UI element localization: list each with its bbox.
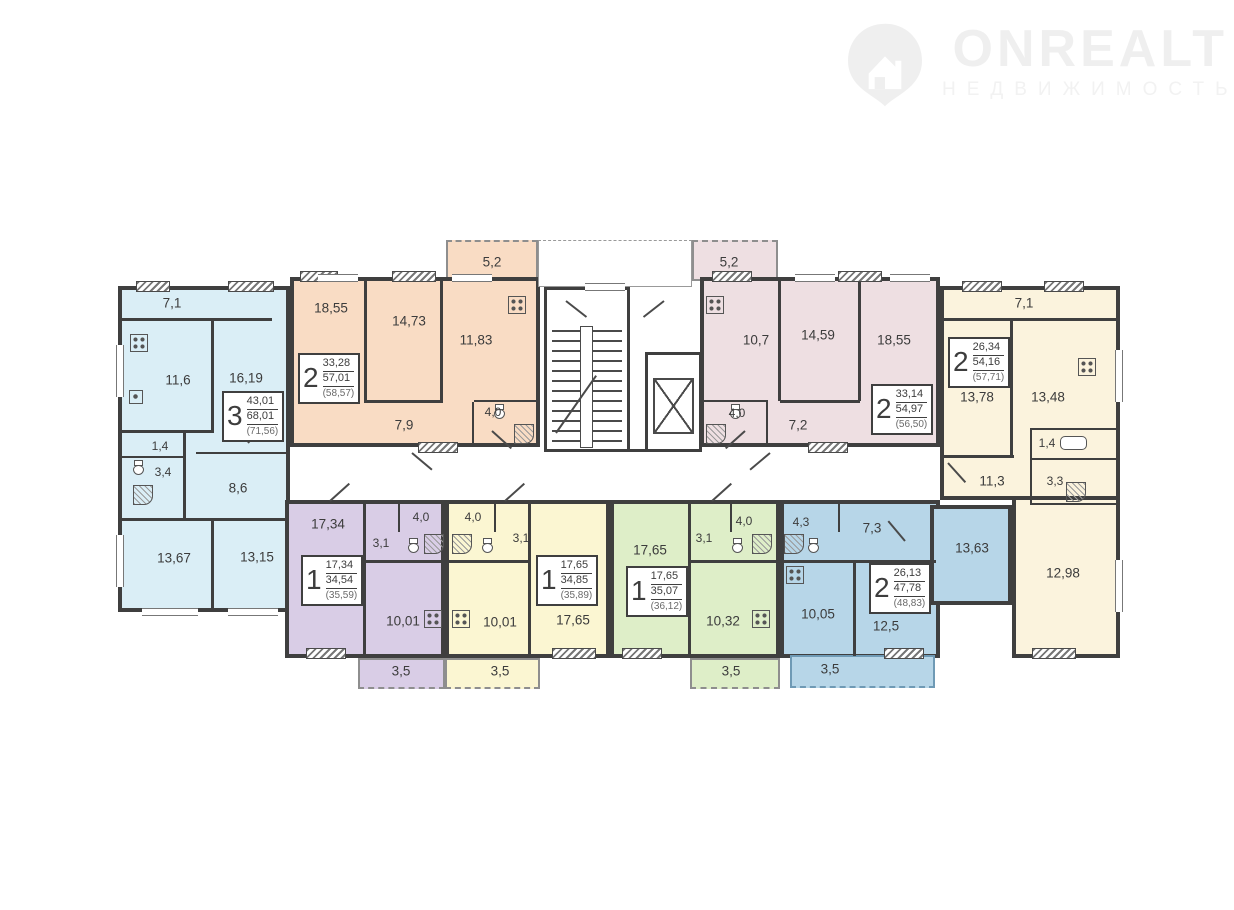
wall: [853, 563, 856, 656]
area-with-balcony: (56,50): [896, 418, 928, 431]
room-area-label: 18,55: [314, 301, 348, 316]
room-area-label: 4,0: [736, 514, 753, 528]
wall: [858, 281, 861, 401]
stove-icon: [130, 334, 148, 352]
wall-pier: [838, 271, 882, 282]
room-area-label: 13,15: [240, 550, 274, 565]
wall-pier: [808, 442, 848, 453]
living-area: 26,34: [973, 341, 1005, 356]
wall: [1032, 503, 1116, 505]
room-area-label: 16,19: [229, 371, 263, 386]
wall: [1030, 458, 1116, 460]
wall: [1030, 428, 1116, 430]
wall: [122, 430, 214, 433]
room-area-label: 3,1: [373, 536, 390, 550]
wall-pier: [1032, 648, 1076, 659]
window: [890, 274, 930, 282]
total-area: 54,97: [896, 403, 928, 418]
total-area: 34,54: [326, 574, 358, 589]
area-with-balcony: (35,59): [326, 589, 358, 602]
area-with-balcony: (71,56): [247, 425, 279, 438]
window: [795, 274, 835, 282]
shower-icon: [706, 424, 726, 444]
wall: [766, 402, 768, 445]
window: [452, 274, 492, 282]
window: [116, 345, 124, 397]
apartment-info-box-mauve[interactable]: 2 33,14 54,97 (56,50): [871, 384, 933, 435]
wall: [1030, 430, 1032, 505]
room-area-label: 13,67: [157, 551, 191, 566]
wall: [183, 433, 186, 518]
window: [116, 535, 124, 587]
total-area: 35,07: [651, 585, 683, 600]
total-area: 54,16: [973, 356, 1005, 371]
room-area-label: 5,2: [720, 255, 739, 270]
total-area: 47,78: [894, 582, 926, 597]
window: [1115, 350, 1123, 402]
room-area-label: 3,5: [491, 664, 510, 679]
room-area-label: 7,9: [395, 418, 414, 433]
stove-icon: [786, 566, 804, 584]
living-area: 17,65: [651, 570, 683, 585]
wall: [691, 560, 776, 563]
wall: [494, 504, 496, 532]
core-gallery: [538, 240, 692, 287]
wall-pier: [552, 648, 596, 659]
wall: [398, 504, 400, 532]
apartment-info-box-green[interactable]: 1 17,65 35,07 (36,12): [626, 566, 688, 617]
wall-pier: [622, 648, 662, 659]
door: [643, 300, 665, 318]
area-with-balcony: (35,89): [561, 589, 593, 602]
room-area-label: 3,1: [696, 531, 713, 545]
room-area-label: 14,59: [801, 328, 835, 343]
wall-pier: [962, 281, 1002, 292]
wall: [474, 400, 538, 402]
room-area-label: 7,2: [789, 418, 808, 433]
living-area: 26,13: [894, 567, 926, 582]
room-area-label: 10,01: [386, 614, 420, 629]
wall: [702, 400, 768, 402]
room-count: 2: [303, 364, 319, 392]
wall: [944, 455, 1014, 458]
sink-icon: [1060, 436, 1087, 450]
washer-icon: [129, 390, 143, 404]
stove-icon: [424, 610, 442, 628]
living-area: 17,34: [326, 559, 358, 574]
wall-pier: [228, 281, 274, 292]
room-area-label: 13,78: [960, 390, 994, 405]
wall: [366, 560, 445, 563]
wall: [363, 504, 366, 656]
wall: [122, 318, 272, 321]
room-area-label: 4,0: [485, 405, 502, 419]
room-area-label: 12,98: [1046, 566, 1080, 581]
room-area-label: 18,55: [877, 333, 911, 348]
room-count: 1: [631, 577, 647, 605]
toilet-icon: [808, 538, 819, 553]
room-area-label: 17,65: [633, 543, 667, 558]
wall: [688, 504, 691, 656]
window: [142, 608, 198, 616]
room-area-label: 11,83: [460, 333, 493, 348]
room-area-label: 7,1: [1015, 296, 1034, 311]
room-area-label: 13,63: [955, 541, 989, 556]
room-count: 2: [953, 348, 969, 376]
shower-icon: [752, 534, 772, 554]
living-area: 43,01: [247, 395, 279, 410]
room-area-label: 7,1: [163, 296, 182, 311]
room-area-label: 3,5: [392, 664, 411, 679]
shower-icon: [424, 534, 444, 554]
stove-icon: [452, 610, 470, 628]
area-with-balcony: (48,83): [894, 597, 926, 610]
toilet-icon: [133, 460, 144, 475]
wall: [364, 400, 443, 403]
wall: [778, 281, 781, 401]
toilet-icon: [482, 538, 493, 553]
room-count: 1: [306, 566, 322, 594]
living-area: 33,28: [323, 357, 355, 372]
room-area-label: 4,0: [465, 510, 482, 524]
room-area-label: 17,34: [311, 517, 345, 532]
onrealt-watermark: ONREALT НЕДВИЖИМОСТЬ: [842, 22, 1234, 108]
room-area-label: 3,3: [1047, 474, 1064, 488]
door: [711, 483, 732, 502]
room-area-label: 4,0: [729, 406, 746, 420]
wall: [211, 521, 214, 609]
window: [1115, 560, 1123, 612]
wall: [196, 452, 290, 454]
room-area-label: 14,73: [392, 314, 426, 329]
room-area-label: 13,48: [1031, 390, 1065, 405]
room-area-label: 10,01: [483, 615, 517, 630]
wall: [528, 504, 531, 656]
apartment-info-box-yellow[interactable]: 1 17,65 34,85 (35,89): [536, 555, 598, 606]
wall: [780, 400, 860, 403]
house-pin-icon: [842, 22, 928, 108]
wall-pier: [392, 271, 436, 282]
room-area-label: 17,65: [556, 613, 590, 628]
wall-pier: [306, 648, 346, 659]
brand-subtitle: НЕДВИЖИМОСТЬ: [942, 79, 1234, 101]
wall: [211, 321, 214, 431]
total-area: 68,01: [247, 410, 279, 425]
total-area: 34,85: [561, 574, 593, 589]
shower-icon: [133, 485, 153, 505]
room-area-label: 10,32: [706, 614, 740, 629]
room-area-label: 8,6: [229, 481, 248, 496]
room-count: 3: [227, 402, 243, 430]
apartment-info-box-steelblue[interactable]: 2 26,13 47,78 (48,83): [869, 563, 931, 614]
core-wall: [630, 449, 702, 452]
wall-pier: [884, 648, 924, 659]
door: [749, 452, 770, 470]
apartment-info-box-salmon[interactable]: 2 33,28 57,01 (58,57): [298, 353, 360, 404]
wall-pier: [136, 281, 170, 292]
stove-icon: [508, 296, 526, 314]
room-area-label: 1,4: [152, 439, 169, 453]
stove-icon: [706, 296, 724, 314]
shower-icon: [1066, 482, 1086, 502]
living-area: 33,14: [896, 388, 928, 403]
toilet-icon: [732, 538, 743, 553]
wall: [440, 281, 443, 401]
apartment-info-box-purple[interactable]: 1 17,34 34,54 (35,59): [301, 555, 363, 606]
wall: [122, 518, 288, 521]
toilet-icon: [408, 538, 419, 553]
room-area-label: 5,2: [483, 255, 502, 270]
room-area-label: 11,6: [165, 373, 190, 388]
room-count: 2: [874, 574, 890, 602]
room-area-label: 4,0: [413, 510, 430, 524]
wall: [944, 318, 1116, 321]
room-area-label: 4,3: [793, 515, 810, 529]
balcony-steelblue: [790, 655, 935, 688]
area-with-balcony: (57,71): [973, 371, 1005, 384]
window: [318, 274, 358, 282]
wall-pier: [418, 442, 458, 453]
room-area-label: 3,4: [155, 465, 172, 479]
room-area-label: 12,5: [873, 619, 899, 634]
wall: [838, 504, 840, 532]
apartment-info-box-3room[interactable]: 3 43,01 68,01 (71,56): [222, 391, 284, 442]
wall-pier: [712, 271, 752, 282]
shower-icon: [514, 424, 534, 444]
room-area-label: 10,7: [743, 333, 769, 348]
wall: [449, 560, 528, 563]
room-area-label: 7,3: [863, 521, 882, 536]
door: [504, 483, 525, 502]
room-area-label: 10,05: [801, 607, 835, 622]
area-with-balcony: (36,12): [651, 600, 683, 613]
floor-plan-page: ONREALT НЕДВИЖИМОСТЬ: [0, 0, 1234, 910]
room-area-label: 3,5: [821, 662, 840, 677]
shower-icon: [784, 534, 804, 554]
wall-pier: [1044, 281, 1084, 292]
apartment-info-box-cream[interactable]: 2 26,34 54,16 (57,71): [948, 337, 1010, 388]
room-count: 1: [541, 566, 557, 594]
room-area-label: 1,4: [1039, 436, 1056, 450]
total-area: 57,01: [323, 372, 355, 387]
area-with-balcony: (58,57): [323, 387, 355, 400]
door: [329, 483, 350, 502]
window: [585, 283, 625, 291]
stove-icon: [1078, 358, 1096, 376]
elevator-car: [653, 378, 694, 434]
door: [411, 452, 432, 470]
wall: [472, 402, 474, 445]
room-area-label: 3,1: [513, 531, 530, 545]
room-area-label: 3,5: [722, 664, 741, 679]
brand-wordmark: ONREALT: [953, 22, 1228, 77]
room-area-label: 11,3: [979, 474, 1004, 489]
wall: [730, 504, 732, 532]
stove-icon: [752, 610, 770, 628]
shower-icon: [452, 534, 472, 554]
room-count: 2: [876, 395, 892, 423]
window: [228, 608, 278, 616]
living-area: 17,65: [561, 559, 593, 574]
wall: [364, 281, 367, 401]
wall: [122, 456, 184, 458]
wall: [1010, 321, 1013, 455]
